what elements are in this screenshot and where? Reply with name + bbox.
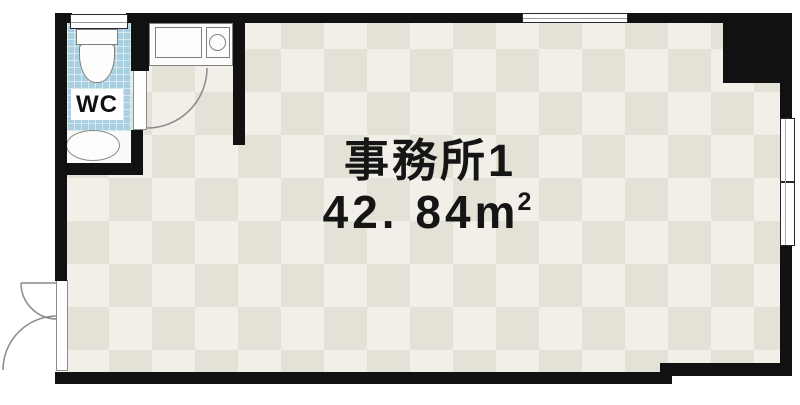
door-swing-icon <box>21 283 57 319</box>
wash-basin-icon <box>66 130 120 161</box>
floor-plan: 事務所1 42. 84m2 WC <box>0 0 800 405</box>
window-mid-line <box>71 22 127 23</box>
door-swing-icon <box>3 316 57 370</box>
wall-wc-right-upper <box>131 23 149 71</box>
wall-wc-bottom <box>55 163 143 175</box>
room-area-label: 42. 84m2 <box>270 187 590 238</box>
area-unit: m <box>475 186 520 238</box>
wall-bottom-left <box>55 372 672 384</box>
area-value: 42. 84 <box>323 186 475 238</box>
kitchen-sink-icon <box>155 27 202 58</box>
wall-left <box>55 13 67 281</box>
window-icon <box>522 13 628 23</box>
wall-wc-right-lower <box>131 130 143 164</box>
wall-corner-column <box>723 13 792 83</box>
wc-door-leaf <box>133 70 147 130</box>
window-mid-line <box>523 18 627 19</box>
window-inner-line <box>785 119 786 245</box>
wall-top <box>126 13 524 23</box>
stove-burner-icon <box>209 34 226 51</box>
toilet-tank <box>76 29 118 45</box>
entry-door-leaf <box>56 280 68 371</box>
wc-label: WC <box>71 89 123 120</box>
window-icon <box>780 118 795 246</box>
area-unit-exponent: 2 <box>517 188 535 216</box>
wall-kitchen-partition <box>233 13 245 145</box>
wall-bottom-right <box>660 363 792 376</box>
window-icon <box>70 14 128 29</box>
room-name-label: 事務所1 <box>280 136 580 186</box>
window-sash-divider <box>781 181 794 183</box>
